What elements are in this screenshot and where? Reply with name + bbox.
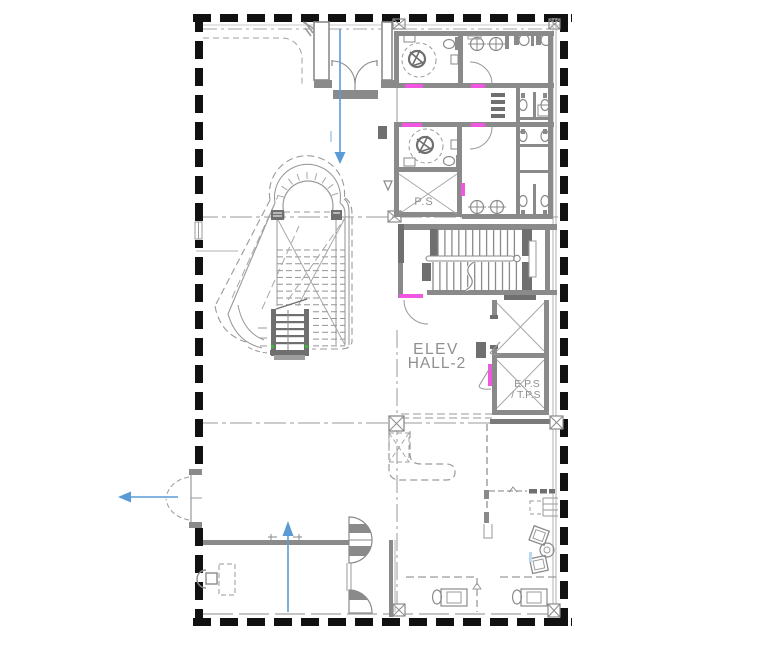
svg-text:/ T.P.S: / T.P.S: [511, 389, 540, 401]
svg-text:P.S: P.S: [414, 196, 433, 208]
svg-text:HALL-2: HALL-2: [408, 355, 467, 372]
